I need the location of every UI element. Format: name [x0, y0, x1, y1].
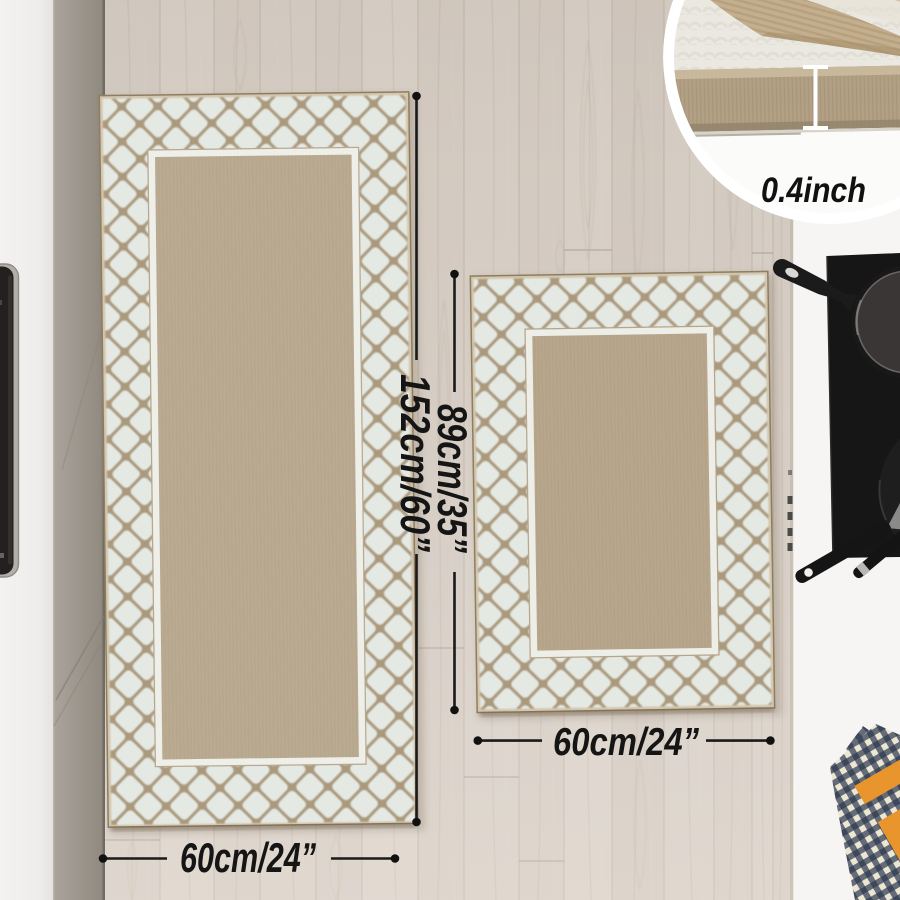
svg-text:60cm/24”: 60cm/24”: [553, 721, 699, 764]
svg-text:89cm/35”: 89cm/35”: [429, 404, 476, 553]
svg-text:0.4inch: 0.4inch: [761, 171, 866, 210]
svg-text:60cm/24”: 60cm/24”: [180, 834, 316, 881]
